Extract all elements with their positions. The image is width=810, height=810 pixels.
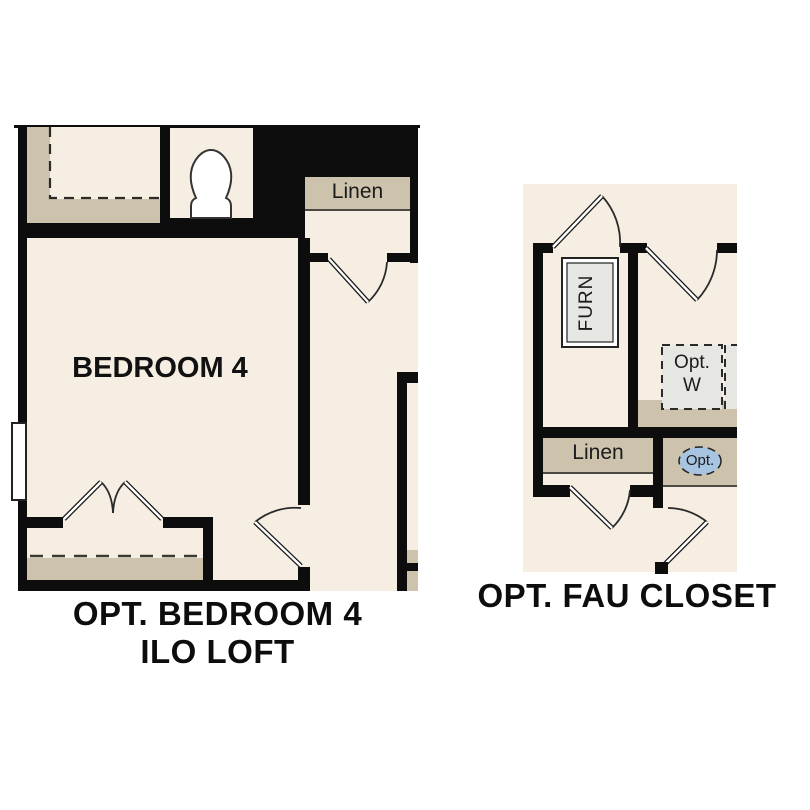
bedroom4-plan-caption: OPT. BEDROOM 4 ILO LOFT (15, 595, 420, 671)
wall (533, 427, 737, 438)
optional-washer-label-line1: Opt. (662, 351, 722, 374)
shelf-edge (305, 209, 410, 211)
window (12, 423, 26, 500)
wall (628, 243, 638, 438)
wall-stub (533, 485, 570, 497)
floorplan-page: Linen BEDROOM 4 FURN Opt. W Linen Opt. O… (0, 0, 810, 810)
wall (410, 177, 418, 263)
shelf-edge (543, 472, 653, 474)
wall (18, 223, 305, 238)
wall-stub (533, 243, 553, 253)
bedroom4-label: BEDROOM 4 (40, 352, 280, 385)
shelf-edge (663, 485, 737, 487)
wall-stub (717, 243, 737, 253)
linen-label-right: Linen (543, 441, 653, 465)
closet-shelf (27, 558, 203, 580)
linen-label-left: Linen (305, 180, 410, 204)
caption-line1: OPT. BEDROOM 4 (15, 595, 420, 633)
wall-block (253, 127, 305, 238)
wall (203, 517, 213, 591)
wall-bottom (18, 580, 305, 591)
optional-washer-label-line2: W (662, 374, 722, 397)
wall-left (18, 127, 27, 591)
wall-stub (387, 253, 418, 262)
optional-washer-label: Opt. W (662, 351, 722, 397)
loft-floor (50, 127, 160, 199)
wall (298, 238, 310, 505)
furnace-label: FURN (576, 258, 604, 348)
wall (160, 127, 170, 223)
caption-line2: ILO LOFT (15, 633, 420, 671)
wall-stub (27, 517, 63, 528)
opt-callout-label: Opt. (679, 452, 721, 469)
wall-stub (407, 563, 418, 571)
floorplan-drawing (0, 0, 810, 810)
wall (397, 372, 407, 591)
wall (653, 428, 663, 508)
fau-closet-caption: OPT. FAU CLOSET (447, 577, 807, 615)
wall-stub (397, 372, 418, 383)
wall-left (533, 243, 543, 497)
sink-icon (191, 150, 232, 218)
